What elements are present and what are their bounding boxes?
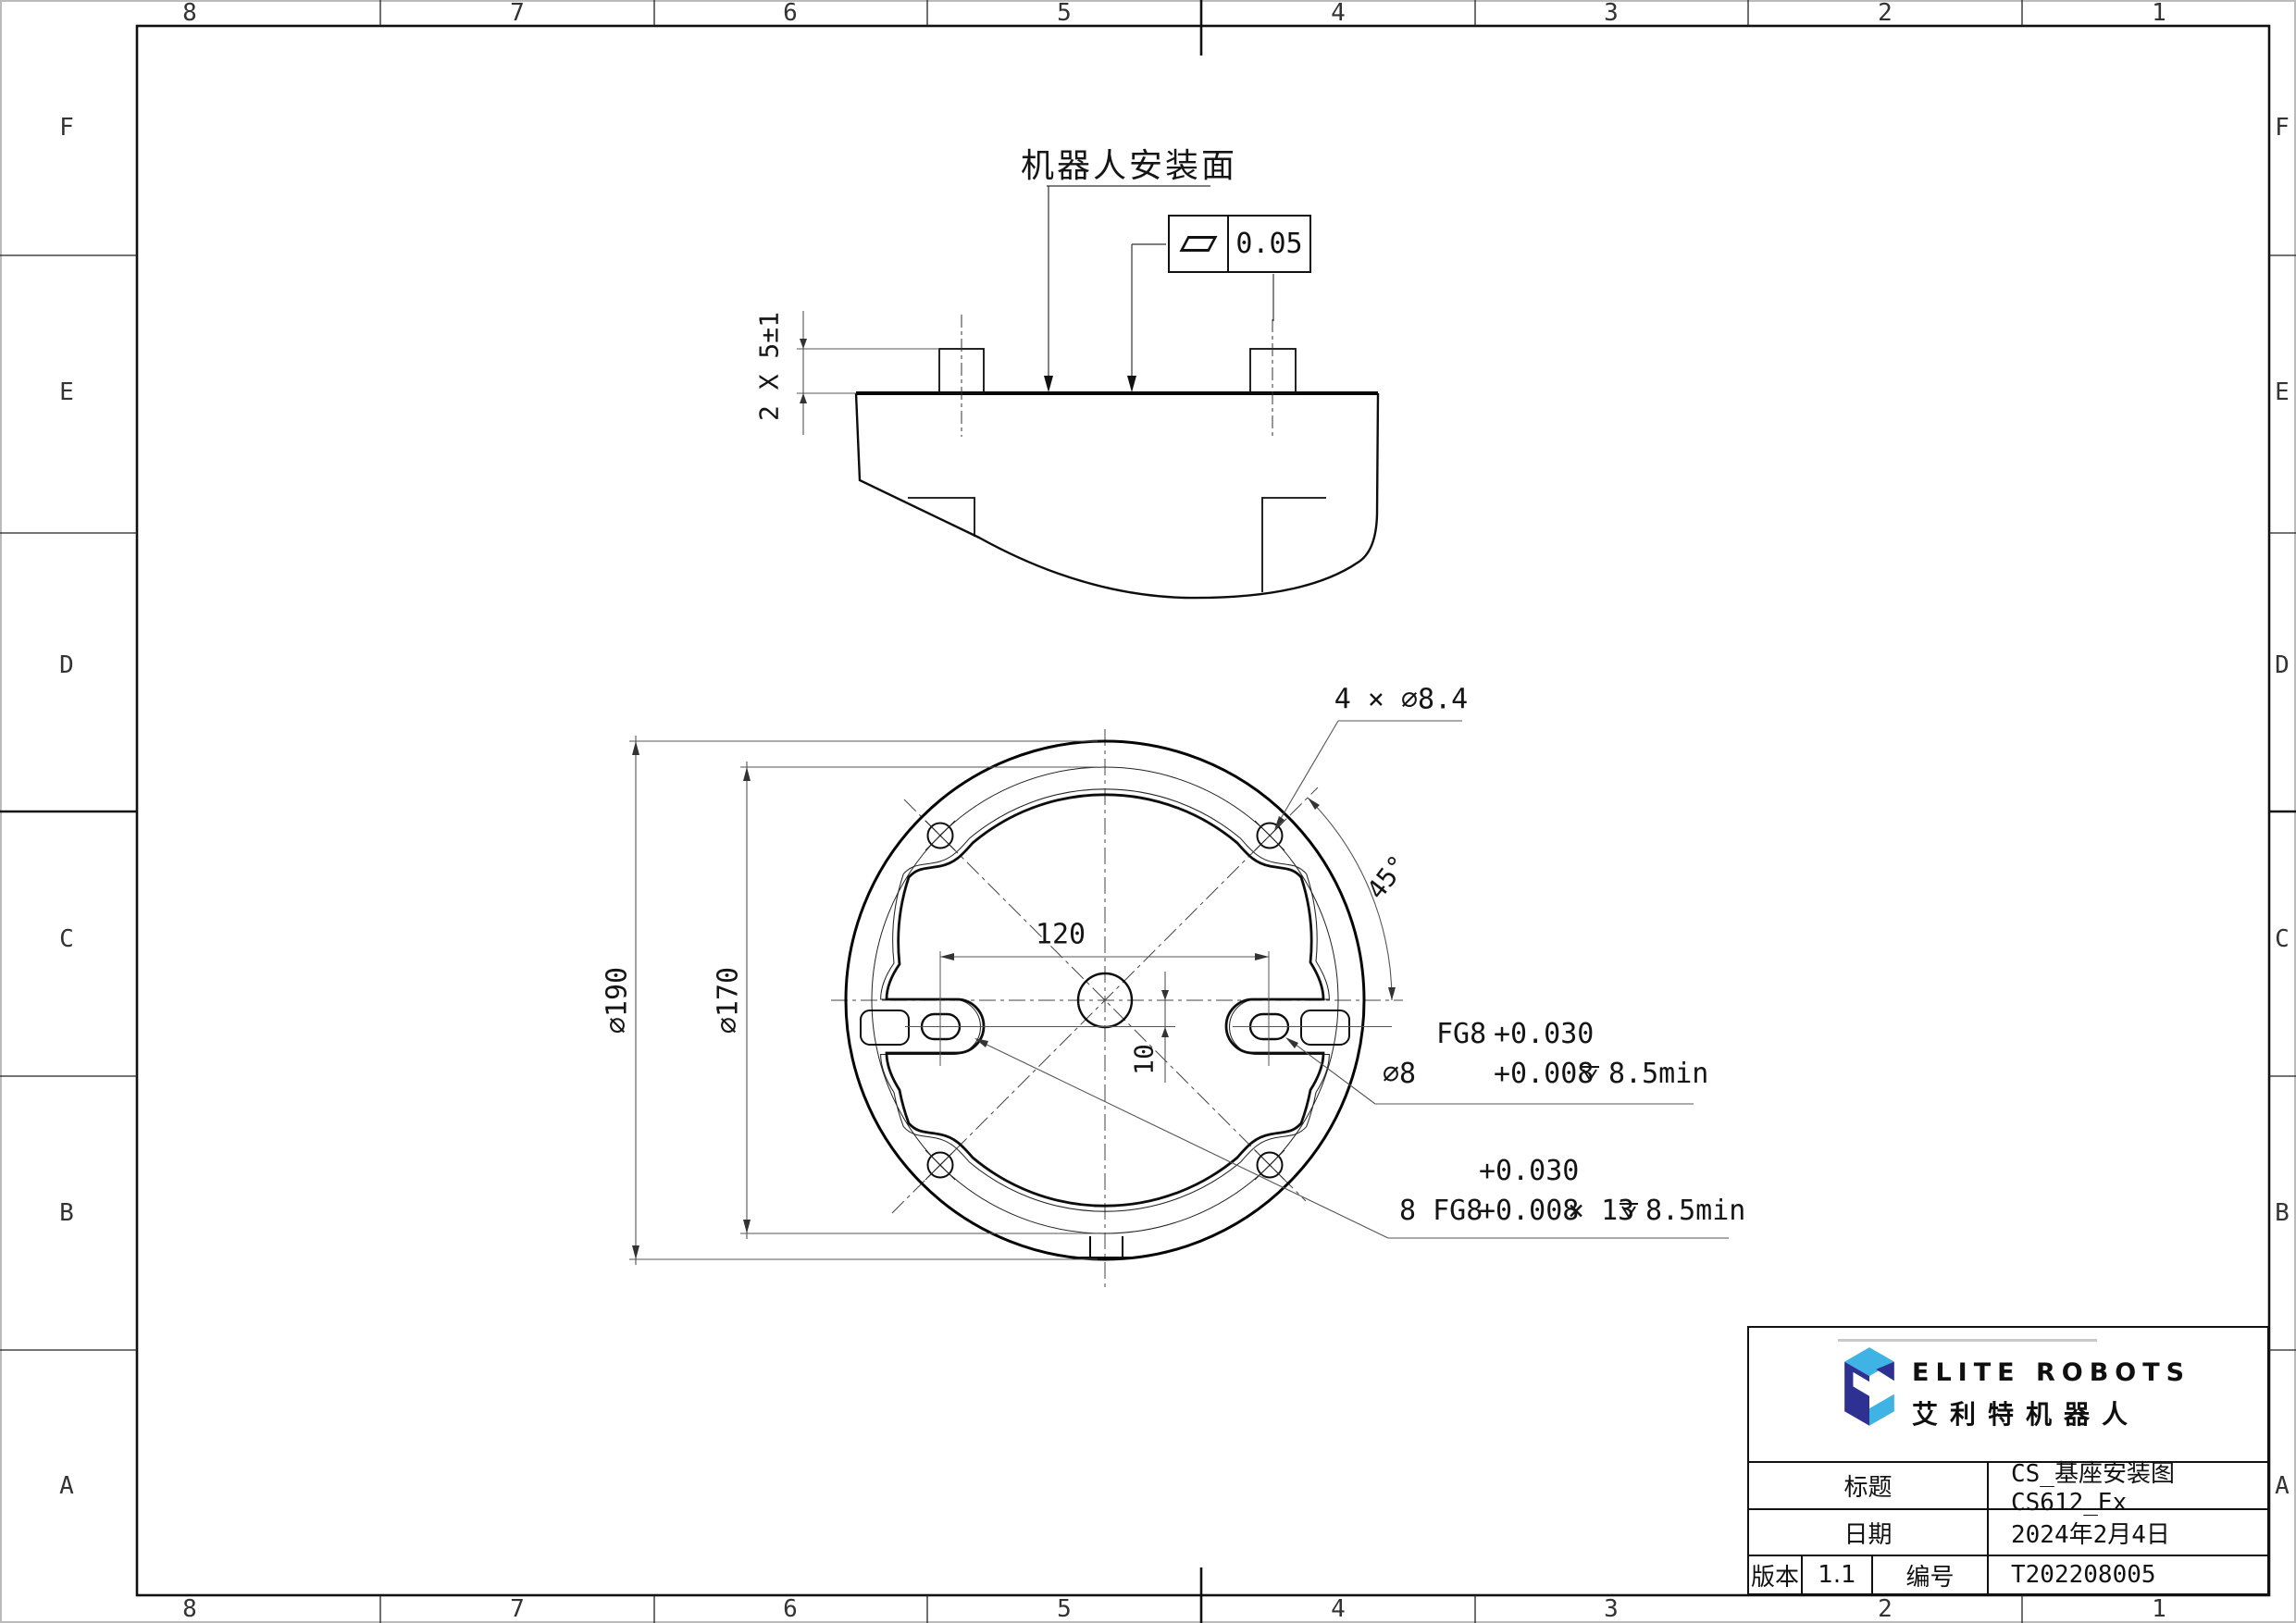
zone-row-left: A [59, 1472, 74, 1500]
zone-col-top: 7 [510, 0, 525, 27]
depth-symbol-icon [1579, 1064, 1601, 1083]
pattern-note-depth: 8.5min [1645, 1195, 1745, 1227]
logo-accent-line [1838, 1339, 2097, 1342]
zone-col-bottom: 1 [2152, 1595, 2166, 1623]
zone-col-top: 5 [1057, 0, 1072, 27]
zone-col-bottom: 7 [510, 1595, 525, 1623]
title-label: 标题 [1749, 1463, 1987, 1508]
slot-note-dia: ⌀8 [1383, 1058, 1416, 1090]
zone-col-top: 2 [1878, 0, 1893, 27]
zone-col-bottom: 4 [1331, 1595, 1346, 1623]
zone-row-right: F [2275, 114, 2290, 142]
number-value: T202208005 [1987, 1556, 2267, 1593]
title-block: ELITE ROBOTS 艾利特机器人 标题 CS_基座安装图 CS612_Ex… [1747, 1326, 2269, 1595]
dim-label-120: 120 [1036, 919, 1086, 951]
pocket-rect-right [1301, 1010, 1349, 1045]
zone-row-right: B [2275, 1199, 2290, 1227]
zone-row-left: F [59, 114, 74, 142]
number-label: 编号 [1871, 1556, 1987, 1593]
elite-robots-logo-icon [1840, 1344, 1899, 1433]
zone-col-top: 6 [783, 0, 798, 27]
zone-row-left: C [59, 925, 74, 953]
pattern-note-upper: +0.030 [1479, 1155, 1579, 1187]
zone-col-bottom: 8 [182, 1595, 197, 1623]
zone-col-bottom: 3 [1604, 1595, 1619, 1623]
pattern-note-lower: +0.008 [1479, 1195, 1579, 1227]
drawing-sheet: 8 7 6 5 4 3 2 1 8 7 6 5 4 3 2 1 F E D C … [0, 0, 2296, 1623]
zone-col-bottom: 2 [1878, 1595, 1893, 1623]
zone-col-top: 3 [1604, 0, 1619, 27]
pin-dimension: 2 X 5±1 [754, 312, 785, 421]
zone-col-bottom: 6 [783, 1595, 798, 1623]
brand-name-en: ELITE ROBOTS [1912, 1358, 2191, 1387]
zone-row-right: A [2275, 1472, 2290, 1500]
slot-note-upper: +0.030 [1494, 1018, 1594, 1050]
zone-row-left: E [59, 378, 74, 406]
bottom-tab [1080, 1236, 1133, 1258]
slot-note-depth: 8.5min [1608, 1058, 1708, 1090]
flatness-symbol-icon [1179, 236, 1217, 252]
holes-callout: 4 × ⌀8.4 [1334, 684, 1469, 716]
zone-col-bottom: 5 [1057, 1595, 1072, 1623]
flatness-frame: 0.05 [1168, 215, 1311, 273]
version-label: 版本 [1749, 1556, 1801, 1593]
dim-label-10: 10 [1129, 1044, 1160, 1075]
zone-col-top: 1 [2152, 0, 2166, 27]
date-value: 2024年2月4日 [1987, 1510, 2267, 1555]
zone-col-top: 4 [1331, 0, 1346, 27]
mounting-surface-label: 机器人安装面 [1021, 139, 1237, 187]
date-label: 日期 [1749, 1510, 1987, 1555]
brand-name-cn: 艾利特机器人 [1912, 1394, 2140, 1431]
zone-col-top: 8 [182, 0, 197, 27]
slot-note-fit: FG8 [1436, 1018, 1486, 1050]
leader-holes [1276, 721, 1462, 826]
depth-symbol-icon [1618, 1201, 1640, 1220]
zone-row-right: E [2275, 378, 2290, 406]
version-value: 1.1 [1801, 1556, 1871, 1593]
zone-row-left: D [59, 651, 74, 679]
pattern-note-lead: 8 FG8 [1399, 1195, 1483, 1227]
zone-row-left: B [59, 1199, 74, 1227]
pocket-rect-left [861, 1010, 909, 1045]
flatness-value: 0.05 [1229, 217, 1309, 271]
dim-label-d170: ⌀170 [713, 967, 745, 1034]
dim-label-d190: ⌀190 [602, 967, 634, 1034]
zone-row-right: C [2275, 925, 2290, 953]
zone-row-right: D [2275, 651, 2290, 679]
title-value: CS_基座安装图 CS612_Ex [1987, 1463, 2267, 1508]
